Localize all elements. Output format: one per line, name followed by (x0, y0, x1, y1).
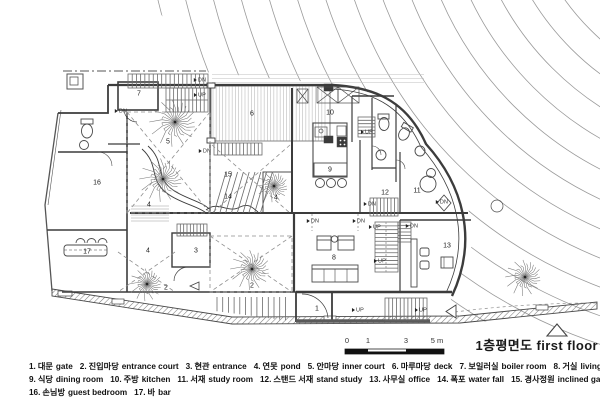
legend-item: 16.손님방guest bedroom (29, 388, 127, 397)
legend-line: 9.식당dining room10.주방kitchen11.서재study ro… (29, 373, 589, 386)
direction-label-dn: DN (307, 219, 319, 225)
room-label-10: 10 (326, 110, 334, 117)
room-label-4: 4 (146, 248, 150, 255)
stair-arrow-icon (364, 202, 367, 206)
legend-item: 6.마루마당deck (392, 362, 453, 371)
room-label-13: 13 (443, 243, 451, 250)
stair-arrow-icon (352, 308, 355, 312)
room-label-2: 2 (250, 283, 254, 290)
legend-item: 11.서재study room (177, 375, 253, 384)
room-label-3: 3 (194, 248, 198, 255)
direction-label-up: UP (361, 130, 373, 136)
direction-label-dn: DN (406, 224, 418, 230)
room-label-15: 15 (224, 172, 232, 179)
room-label-9: 9 (328, 167, 332, 174)
room-label-16: 16 (93, 180, 101, 187)
legend-line: 16.손님방guest bedroom17.바bar (29, 386, 589, 399)
stair-arrow-icon (194, 93, 197, 97)
scale-tick: 0 (345, 336, 349, 345)
legend-item: 3.현관entrance (186, 362, 247, 371)
legend-item: 17.바bar (134, 388, 171, 397)
stair-arrow-icon (353, 219, 356, 223)
markers (190, 282, 567, 336)
legend-item: 2.진입마당entrance court (80, 362, 179, 371)
direction-label-up: UP (415, 308, 427, 314)
site-boundary (45, 71, 597, 324)
scale-tick: 1 (366, 336, 370, 345)
legend-item: 9.식당dining room (29, 375, 103, 384)
room-label-4: 4 (274, 195, 278, 202)
direction-label-dn: DN (194, 78, 206, 84)
direction-label-up: UP (352, 308, 364, 314)
deck-area (211, 86, 330, 141)
legend-item: 10.주방kitchen (110, 375, 170, 384)
stair-arrow-icon (415, 308, 418, 312)
floor-plan-sheet: 1223444567891011121314151617 DNUPDNDNUPD… (0, 0, 600, 402)
direction-label-dn: DN (199, 149, 211, 155)
legend-item: 1.대문gate (29, 362, 73, 371)
drawing-title: 1층평면도 first floor (442, 335, 598, 354)
stair-arrow-icon (115, 109, 118, 113)
building-walls (47, 82, 471, 322)
room-label-6: 6 (250, 111, 254, 118)
stair-arrow-icon (199, 149, 202, 153)
legend-item: 13.사무실office (369, 375, 430, 384)
scale-tick: 3 (404, 336, 408, 345)
room-label-5: 5 (166, 139, 170, 146)
legend-item: 14.폭포water fall (437, 375, 504, 384)
legend-line: 1.대문gate2.진입마당entrance court3.현관entrance… (29, 360, 589, 373)
legend-item: 8.거실living room (554, 362, 600, 371)
stair-arrow-icon (406, 224, 409, 228)
room-label-8: 8 (332, 255, 336, 262)
room-label-17: 17 (83, 249, 91, 256)
direction-label-up: UP (194, 93, 206, 99)
legend-item: 4.연못pond (254, 362, 301, 371)
legend-item: 12.스탠드 서재stand study (260, 375, 362, 384)
stair-arrow-icon (436, 200, 439, 204)
direction-triangle-icon (190, 282, 199, 290)
legend-item: 7.보일러실boiler room (460, 362, 547, 371)
direction-label-dn: DN (436, 200, 448, 206)
stair-arrow-icon (194, 78, 197, 82)
room-label-7: 7 (137, 91, 141, 98)
room-label-12: 12 (381, 190, 389, 197)
scale-bar (345, 349, 444, 354)
direction-label-up: UP (374, 259, 386, 265)
direction-label-up: UP (369, 225, 381, 231)
stair-arrow-icon (361, 130, 364, 134)
legend-item: 15.경사정원inclined garden (511, 375, 600, 384)
stair-arrow-icon (307, 219, 310, 223)
legend-item: 5.안마당inner court (308, 362, 385, 371)
room-label-14: 14 (224, 194, 232, 201)
direction-label-dn: DN (364, 202, 376, 208)
room-label-4: 4 (147, 202, 151, 209)
room-label-11: 11 (413, 188, 420, 195)
legend: 1.대문gate2.진입마당entrance court3.현관entrance… (29, 360, 589, 399)
direction-label-dn: DN (115, 109, 127, 115)
stair-arrow-icon (374, 259, 377, 263)
room-label-2: 2 (164, 285, 168, 292)
stair-arrow-icon (369, 225, 372, 229)
direction-label-dn: DN (353, 219, 365, 225)
room-label-1: 1 (315, 306, 319, 313)
